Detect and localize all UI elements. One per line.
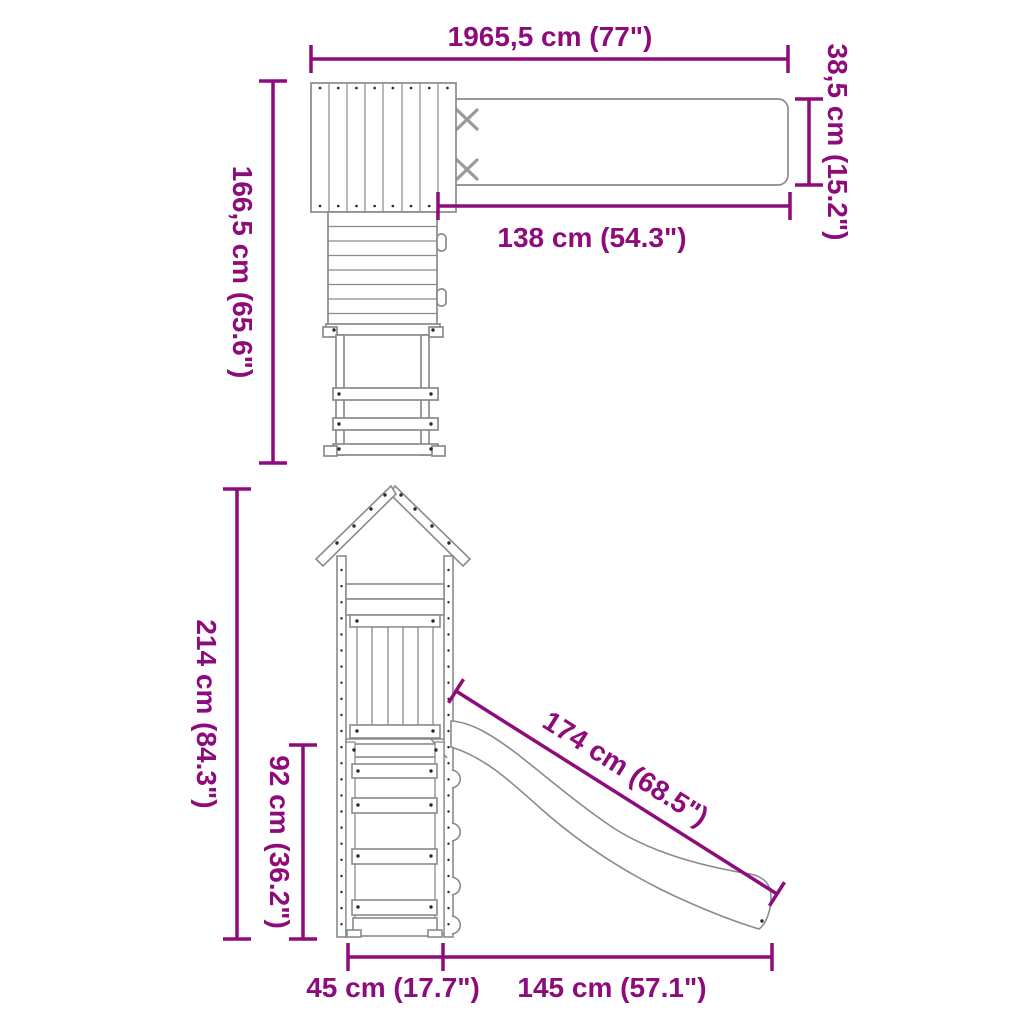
side-balustrade-top-rail (350, 615, 440, 627)
screw-dot (352, 524, 355, 527)
side-ladder-rung (352, 900, 437, 915)
screw-dot (383, 493, 386, 496)
dim-label-tower-depth: 166,5 cm (65.6") (227, 166, 258, 379)
screw-dot (760, 919, 763, 922)
screw-dot (413, 507, 416, 510)
playset-dimension-diagram: 1965,5 cm (77") 38,5 cm (15.2") 138 cm (… (0, 0, 1024, 1024)
climbing-hold (452, 823, 460, 841)
screw-dot (369, 507, 372, 510)
side-ladder-rung (352, 798, 437, 813)
screw-dot (429, 854, 432, 857)
side-ground-foot (428, 930, 442, 937)
dim-label-base-depth: 45 cm (17.7") (306, 972, 480, 1003)
screw-dot (431, 328, 434, 331)
screw-dot (434, 748, 437, 751)
dim-line-beam-width (795, 99, 823, 185)
plan-ladder-foot (432, 446, 445, 456)
side-top-plate (346, 584, 444, 599)
screw-dot (356, 854, 359, 857)
screw-dot (335, 541, 338, 544)
screw-dot (399, 493, 402, 496)
plan-wall-handle (437, 234, 446, 251)
side-balustrade-bottom-rail (350, 725, 440, 738)
screw-dot (356, 905, 359, 908)
plan-ladder-bottom-bar (333, 444, 438, 455)
dim-label-total-width: 1965,5 cm (77") (448, 21, 653, 52)
screw-dot (337, 447, 340, 450)
plan-base-foot (323, 327, 337, 337)
dim-label-platform-height: 92 cm (36.2") (264, 755, 295, 929)
screw-dot (337, 422, 340, 425)
climbing-hold (452, 770, 460, 788)
screw-dot (429, 422, 432, 425)
plan-swing-beam (440, 99, 788, 185)
screw-dot (356, 769, 359, 772)
climbing-hold (452, 916, 460, 934)
side-roof-rafter-right (390, 486, 470, 566)
screw-dot (337, 392, 340, 395)
screw-dot (429, 905, 432, 908)
side-frame-bar (352, 764, 437, 778)
screw-dot (429, 392, 432, 395)
dim-label-total-height: 214 cm (84.3") (191, 619, 222, 808)
screw-dot (332, 328, 335, 331)
side-roof-rafter-left (316, 486, 396, 566)
diagram-page: 1965,5 cm (77") 38,5 cm (15.2") 138 cm (… (0, 0, 1024, 1024)
screw-dot (429, 769, 432, 772)
plan-ladder-rung (333, 388, 438, 400)
dim-line-beam-length (438, 192, 790, 220)
side-baluster (418, 627, 433, 725)
screw-dot (352, 748, 355, 751)
screw-dot (355, 619, 358, 622)
dim-label-beam-length: 138 cm (54.3") (497, 222, 686, 253)
plan-ladder-rung (333, 418, 438, 430)
screw-dot (429, 803, 432, 806)
side-platform-floor (348, 744, 442, 757)
climbing-hold (452, 877, 460, 895)
screw-dot (431, 729, 434, 732)
plan-ladder-foot (324, 446, 337, 456)
plan-base-foot (429, 327, 443, 337)
screw-dot (355, 729, 358, 732)
side-baluster (388, 627, 403, 725)
screw-dot (430, 524, 433, 527)
plan-view (311, 83, 788, 456)
screw-dot (429, 447, 432, 450)
dim-label-beam-width: 38,5 cm (15.2") (822, 44, 853, 241)
dim-line-total-height (223, 489, 251, 939)
side-bottom-plank (353, 918, 437, 936)
side-view (316, 486, 771, 937)
screw-dot (431, 619, 434, 622)
screw-dot (356, 803, 359, 806)
dim-label-slide-run: 145 cm (57.1") (517, 972, 706, 1003)
plan-base-bar (326, 324, 440, 335)
side-top-plate (346, 599, 444, 615)
side-ground-foot (347, 930, 361, 937)
plan-wall-handle (437, 289, 446, 306)
side-ladder-rung (352, 849, 437, 864)
side-baluster (357, 627, 372, 725)
screw-dot (447, 541, 450, 544)
dim-line-tower-depth (259, 81, 287, 463)
dim-line-base-and-run (348, 943, 772, 971)
